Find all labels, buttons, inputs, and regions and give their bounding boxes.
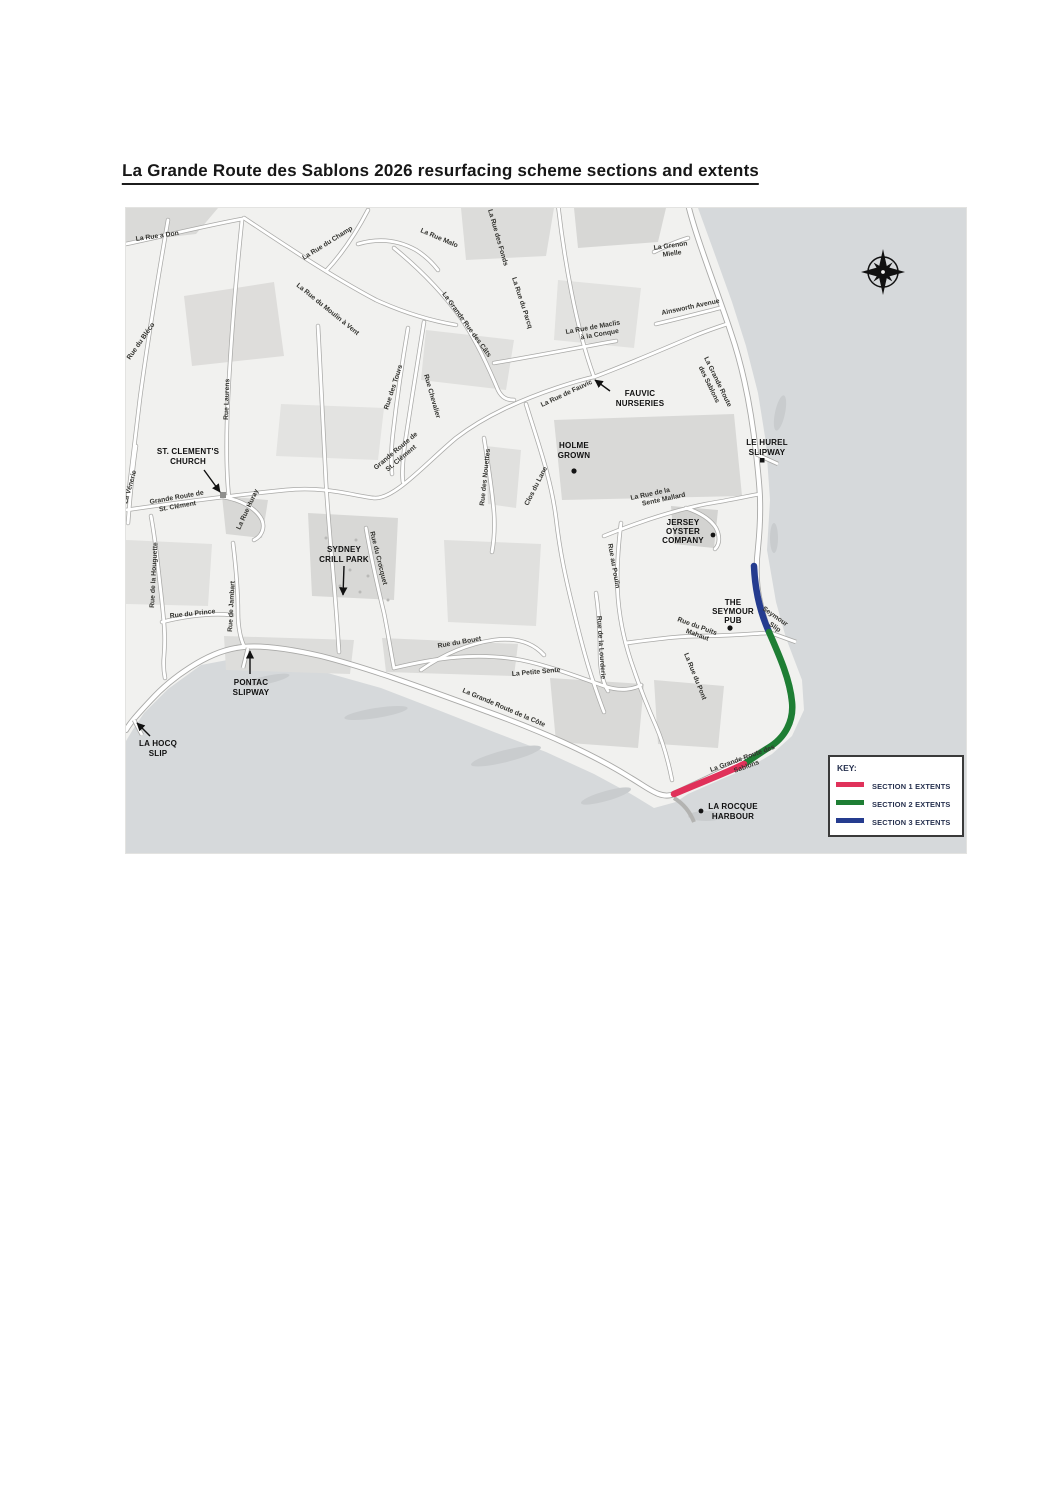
la-rocque-harbour-label: HARBOUR bbox=[712, 812, 754, 821]
map: ST. CLEMENT'S CHURCH SYDNEY CRILL PARK P… bbox=[126, 208, 966, 853]
jersey-oyster-marker bbox=[711, 533, 716, 538]
church-building bbox=[220, 492, 226, 498]
section-1-swatch bbox=[836, 782, 864, 787]
la-rocque-marker bbox=[699, 809, 704, 814]
seymour-pub-label: SEYMOUR bbox=[712, 607, 754, 616]
section-2-swatch bbox=[836, 800, 864, 805]
fauvic-nurseries-label: NURSERIES bbox=[616, 399, 665, 408]
la-hocq-slip-label: LA HOCQ bbox=[139, 739, 177, 748]
section-3-swatch bbox=[836, 818, 864, 823]
la-rocque-harbour-label: LA ROCQUE bbox=[708, 802, 758, 811]
section-1-key-label: SECTION 1 EXTENTS bbox=[872, 782, 951, 791]
jersey-oyster-label: JERSEY bbox=[667, 518, 700, 527]
le-hurel-marker bbox=[760, 458, 765, 463]
pontac-slipway-label: PONTAC bbox=[234, 678, 268, 687]
jersey-oyster-label: COMPANY bbox=[662, 536, 704, 545]
jersey-oyster-label: OYSTER bbox=[666, 527, 700, 536]
fauvic-nurseries-label: FAUVIC bbox=[625, 389, 656, 398]
scanned-page: La Grande Route des Sablons 2026 resurfa… bbox=[0, 0, 1058, 1496]
section-3-key-label: SECTION 3 EXTENTS bbox=[872, 818, 951, 827]
key-title: KEY: bbox=[837, 763, 857, 773]
section-2-key-label: SECTION 2 EXTENTS bbox=[872, 800, 951, 809]
sydney-arrow bbox=[343, 566, 344, 595]
seymour-pub-label: PUB bbox=[724, 616, 742, 625]
sydney-crill-park-label: CRILL PARK bbox=[319, 555, 369, 564]
holme-grown-label: HOLME bbox=[559, 441, 589, 450]
rue-laurens-label: Rue Laurens bbox=[223, 378, 231, 420]
st-clements-church-label: CHURCH bbox=[170, 457, 206, 466]
map-container: ST. CLEMENT'S CHURCH SYDNEY CRILL PARK P… bbox=[125, 207, 967, 854]
la-hocq-slip-label: SLIP bbox=[149, 749, 168, 758]
pontac-slipway-label: SLIPWAY bbox=[233, 688, 270, 697]
sydney-crill-park-label: SYDNEY bbox=[327, 545, 362, 554]
holme-grown-label: GROWN bbox=[558, 451, 591, 460]
st-clements-church-label: ST. CLEMENT'S bbox=[157, 447, 220, 456]
le-hurel-slipway-label: SLIPWAY bbox=[749, 448, 786, 457]
page-title: La Grande Route des Sablons 2026 resurfa… bbox=[122, 161, 759, 185]
holme-grown-marker bbox=[571, 468, 576, 473]
le-hurel-slipway-label: LE HUREL bbox=[746, 438, 788, 447]
map-key: KEY: SECTION 1 EXTENTS SECTION 2 EXTENTS… bbox=[829, 756, 963, 836]
seymour-pub-marker bbox=[727, 625, 732, 630]
seymour-pub-label: THE bbox=[725, 598, 742, 607]
